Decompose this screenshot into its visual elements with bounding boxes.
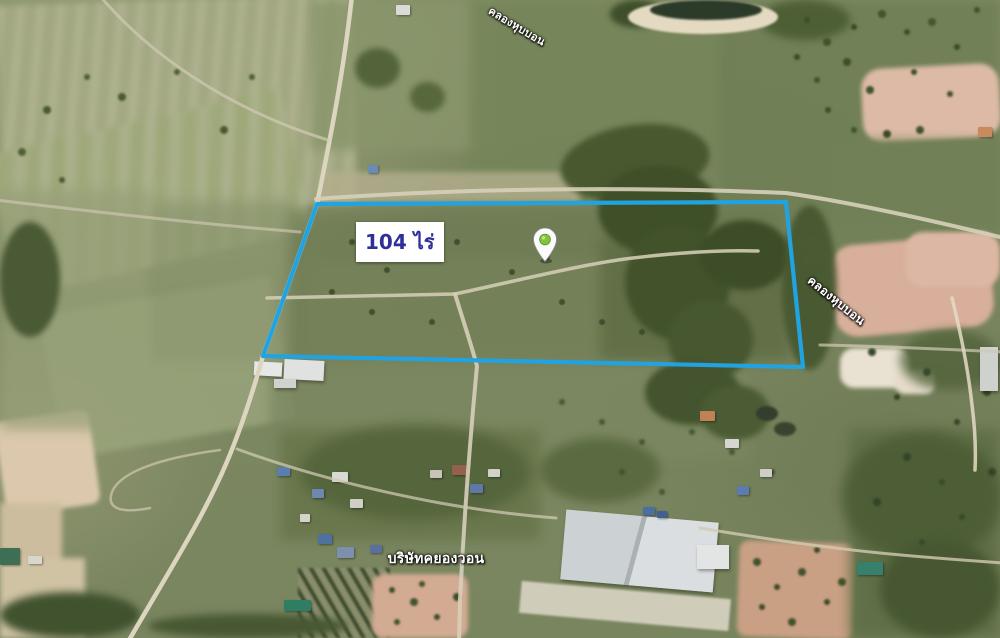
company-label: บริษัทคยองวอน bbox=[388, 548, 485, 570]
parcel-outline[interactable] bbox=[263, 202, 803, 367]
road-parcel-track bbox=[267, 251, 758, 298]
place-marker[interactable] bbox=[534, 228, 557, 264]
marker-dot-highlight bbox=[542, 236, 546, 240]
road-south bbox=[455, 294, 477, 638]
road-track bbox=[820, 345, 1000, 352]
road-main bbox=[128, 0, 352, 638]
road-track bbox=[111, 450, 220, 510]
road-track bbox=[100, 0, 328, 140]
parcel-area-label: 104 ไร่ bbox=[356, 222, 444, 262]
satellite-map[interactable]: 104 ไร่ คลองหุบบอน คลองหุบบอน บริษัทคยอง… bbox=[0, 0, 1000, 638]
marker-dot bbox=[540, 234, 551, 245]
road-track bbox=[0, 200, 300, 232]
road-sand bbox=[952, 298, 975, 470]
road-track bbox=[700, 528, 1000, 563]
road-track bbox=[237, 449, 556, 518]
